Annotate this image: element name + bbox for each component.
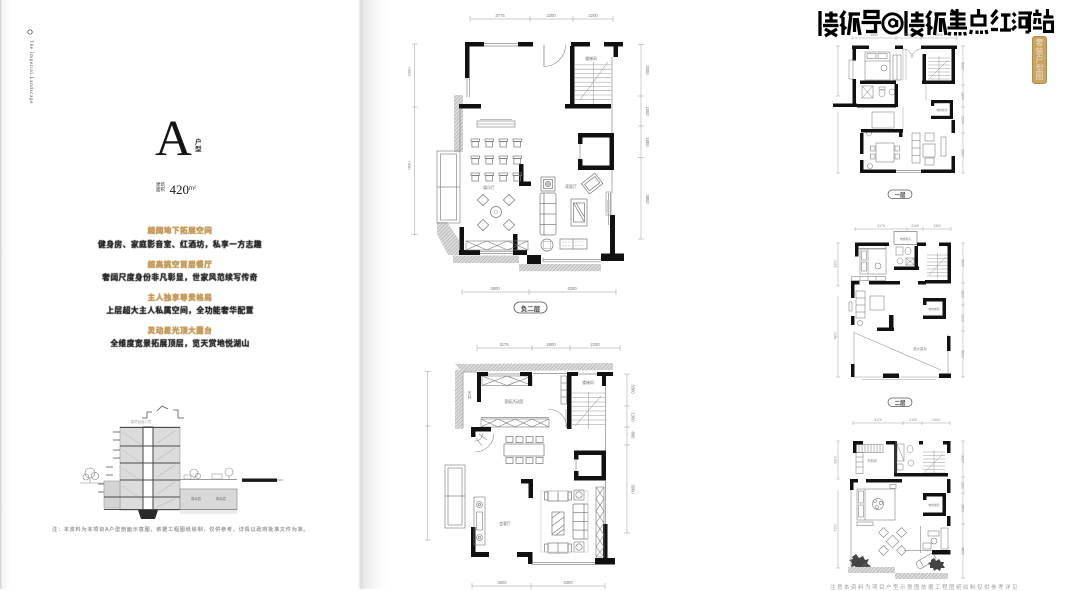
svg-text:负二层: 负二层 xyxy=(521,304,541,313)
svg-text:3600: 3600 xyxy=(490,286,500,291)
svg-text:家庭活动室: 家庭活动室 xyxy=(505,399,524,404)
svg-text:2200: 2200 xyxy=(588,13,598,18)
svg-text:衣帽间: 衣帽间 xyxy=(867,458,877,463)
svg-text:3600: 3600 xyxy=(870,33,878,37)
svg-text:电梯前室: 电梯前室 xyxy=(936,108,947,112)
svg-text:3000: 3000 xyxy=(631,484,636,494)
svg-text:3300: 3300 xyxy=(961,149,965,157)
svg-text:3300: 3300 xyxy=(834,260,838,268)
svg-text:一层: 一层 xyxy=(894,192,906,199)
svg-text:3800: 3800 xyxy=(961,350,965,358)
svg-text:1800: 1800 xyxy=(645,137,650,147)
svg-text:2100: 2100 xyxy=(961,116,965,124)
svg-text:車库层: 車库层 xyxy=(191,496,202,501)
svg-text:2100: 2100 xyxy=(911,224,919,228)
svg-text:楼梯间: 楼梯间 xyxy=(585,56,597,61)
svg-text:3175: 3175 xyxy=(499,342,509,347)
svg-text:2100: 2100 xyxy=(961,314,965,322)
svg-text:1300: 1300 xyxy=(961,481,965,489)
svg-text:3175: 3175 xyxy=(877,224,885,228)
svg-text:楼梯间: 楼梯间 xyxy=(582,380,594,385)
svg-text:3775: 3775 xyxy=(495,13,505,18)
svg-text:2200: 2200 xyxy=(590,342,600,347)
svg-text:7800: 7800 xyxy=(834,332,838,340)
svg-text:3300: 3300 xyxy=(408,67,412,77)
svg-text:4300: 4300 xyxy=(567,286,577,291)
svg-text:3300: 3300 xyxy=(834,456,838,464)
svg-text:2800: 2800 xyxy=(546,342,556,347)
svg-text:2800: 2800 xyxy=(961,504,965,512)
svg-text:建筑剖面示意: 建筑剖面示意 xyxy=(131,419,152,424)
svg-text:1500: 1500 xyxy=(645,106,650,116)
svg-text:电梯前室: 电梯前室 xyxy=(928,307,939,311)
svg-text:天井: 天井 xyxy=(467,391,472,399)
svg-text:超大露台: 超大露台 xyxy=(913,346,927,351)
svg-text:4500: 4500 xyxy=(961,547,965,555)
svg-text:1800: 1800 xyxy=(961,92,965,100)
svg-text:电梯前室: 电梯前室 xyxy=(928,503,939,507)
svg-text:娱乐厅: 娱乐厅 xyxy=(483,185,495,190)
svg-text:4300: 4300 xyxy=(563,580,573,585)
svg-text:二层: 二层 xyxy=(894,400,906,407)
svg-text:2000: 2000 xyxy=(904,33,912,37)
svg-text:3300: 3300 xyxy=(631,384,636,394)
svg-text:3175: 3175 xyxy=(874,418,882,422)
svg-text:車库层: 車库层 xyxy=(216,496,227,501)
svg-text:3600: 3600 xyxy=(497,580,507,585)
svg-text:1300: 1300 xyxy=(631,412,636,422)
svg-text:电梯机房: 电梯机房 xyxy=(900,237,911,241)
svg-text:1300: 1300 xyxy=(932,418,940,422)
svg-text:3300: 3300 xyxy=(961,455,965,463)
svg-text:会客厅: 会客厅 xyxy=(499,521,511,526)
svg-text:3300: 3300 xyxy=(961,62,965,70)
svg-text:1800: 1800 xyxy=(961,290,965,298)
svg-text:2300: 2300 xyxy=(546,13,556,18)
svg-text:7100: 7100 xyxy=(834,524,838,532)
svg-text:2100: 2100 xyxy=(909,418,917,422)
svg-text:3300: 3300 xyxy=(961,259,965,267)
svg-text:3800: 3800 xyxy=(645,194,650,204)
svg-text:1300: 1300 xyxy=(933,224,941,228)
svg-text:2900: 2900 xyxy=(935,33,943,37)
svg-text:800: 800 xyxy=(631,432,636,440)
svg-text:2000: 2000 xyxy=(645,65,650,75)
svg-text:家庭厅: 家庭厅 xyxy=(565,184,577,189)
svg-text:7800: 7800 xyxy=(408,161,412,171)
